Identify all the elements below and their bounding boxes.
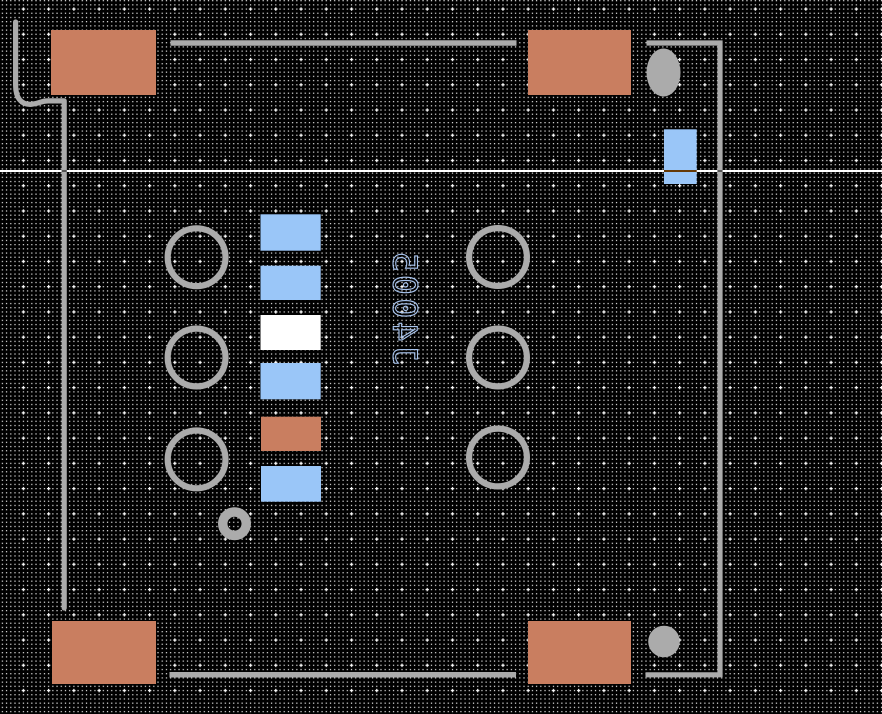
pad-top-copper-br[interactable]	[528, 621, 631, 684]
pad-smd-right-edge[interactable]	[664, 129, 697, 184]
mount-hole-bottom-right[interactable]	[648, 626, 680, 658]
pad-smd-3-highlighted[interactable]	[261, 315, 321, 350]
refdes-text[interactable]: J4005	[386, 248, 425, 365]
grid-crosses	[0, 0, 882, 714]
board-layer-graphics: J4005	[0, 0, 882, 714]
pad-smd-2[interactable]	[261, 266, 321, 300]
pcb-canvas[interactable]: J4005	[0, 0, 882, 714]
pad-smd-5-top-layer[interactable]	[261, 417, 321, 451]
pad-top-copper-bl[interactable]	[52, 621, 156, 684]
pad-top-copper-tl[interactable]	[51, 30, 156, 95]
pad-smd-1[interactable]	[261, 214, 321, 250]
pad-top-copper-tr[interactable]	[528, 30, 631, 95]
mount-hole-top-right[interactable]	[647, 49, 681, 97]
pad-smd-6[interactable]	[261, 466, 321, 502]
pad-smd-4[interactable]	[261, 363, 321, 399]
